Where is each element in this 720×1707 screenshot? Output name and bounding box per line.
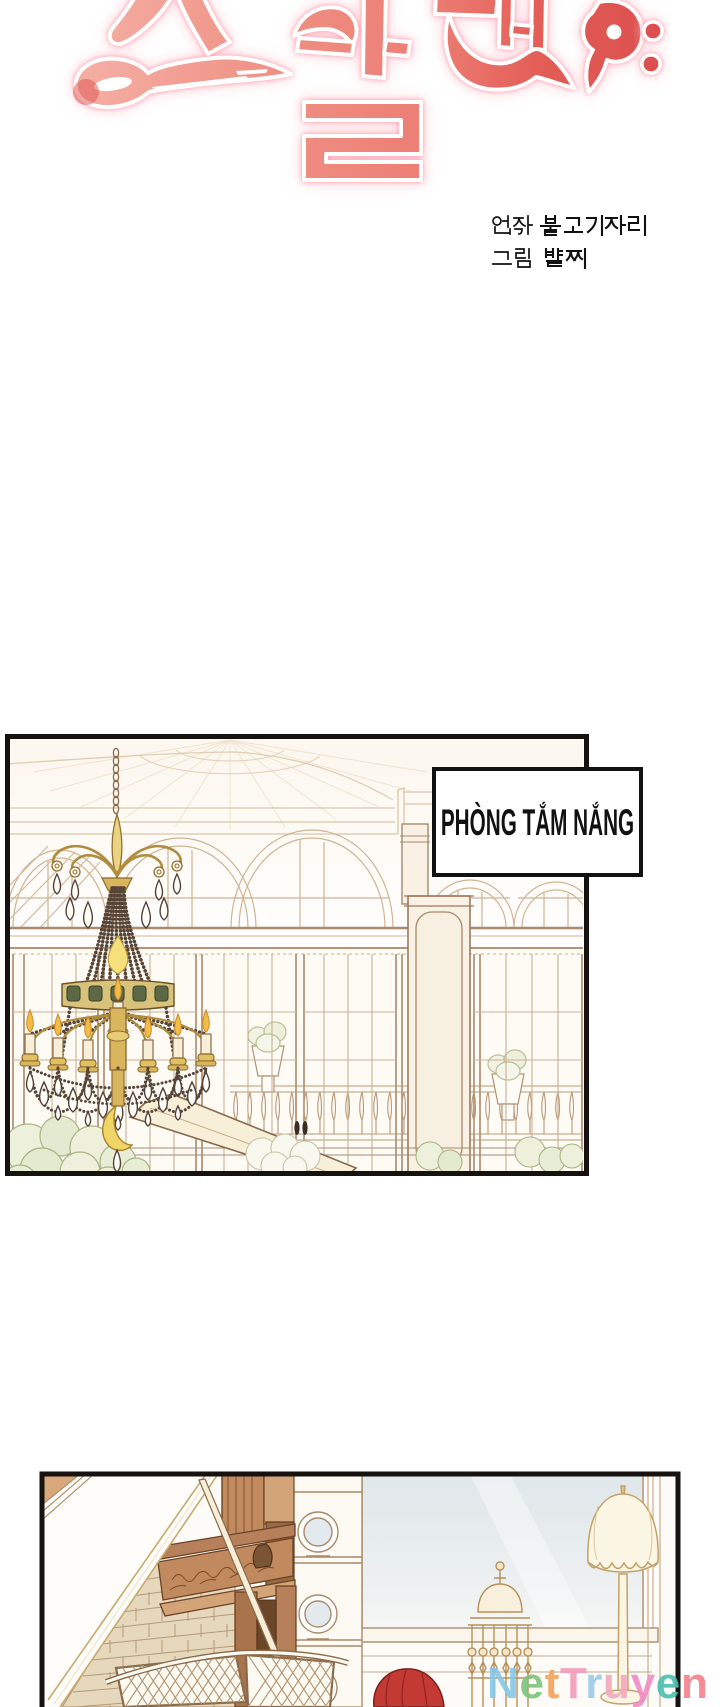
svg-text:t: t [545, 1659, 560, 1707]
svg-text:T: T [560, 1659, 587, 1707]
svg-text:PHÒNG TẮM NẮNG: PHÒNG TẮM NẮNG [441, 802, 634, 844]
svg-text:n: n [681, 1659, 708, 1707]
svg-text:e: e [520, 1659, 544, 1707]
svg-text:e: e [656, 1659, 680, 1707]
svg-text:u: u [603, 1659, 630, 1707]
svg-text:N: N [487, 1659, 519, 1707]
svg-text:r: r [585, 1659, 602, 1707]
svg-text:y: y [631, 1659, 656, 1707]
